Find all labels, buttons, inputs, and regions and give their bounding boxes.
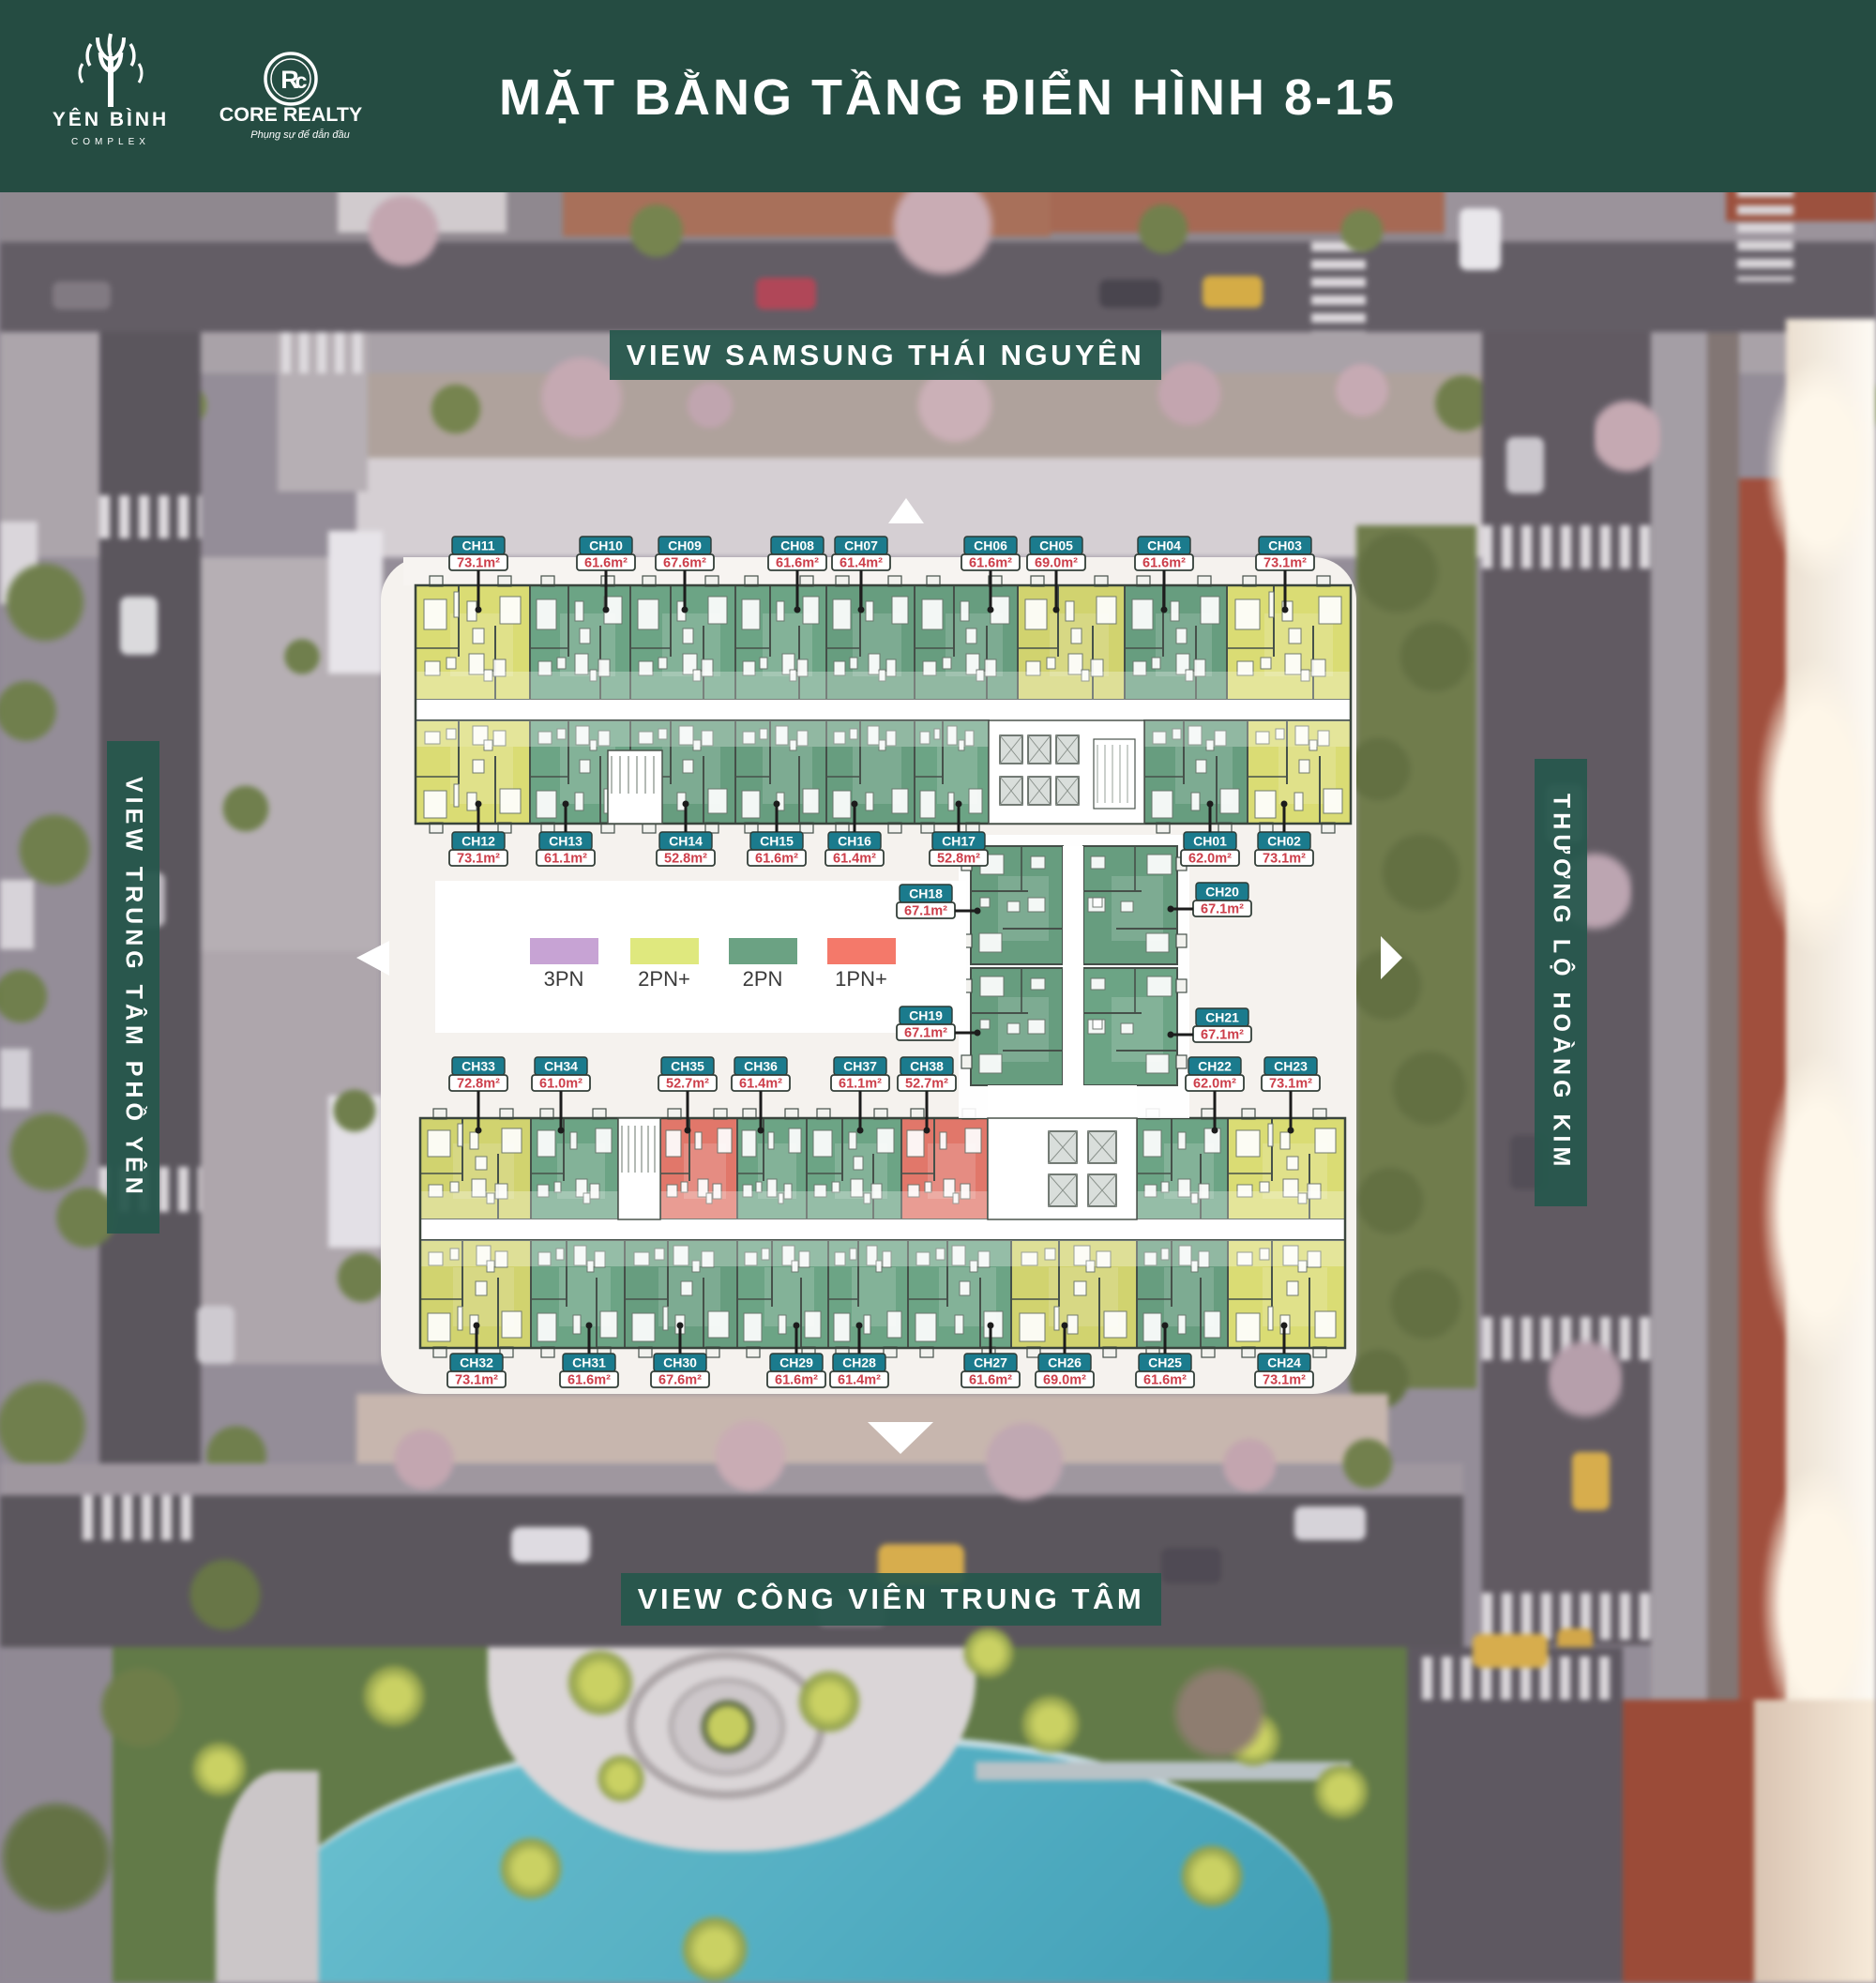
svg-text:CH21: CH21 [1205, 1010, 1239, 1025]
svg-text:73.1m²: 73.1m² [1263, 852, 1306, 867]
svg-text:CH03: CH03 [1268, 538, 1302, 553]
svg-text:67.6m²: 67.6m² [663, 556, 706, 571]
svg-text:67.1m²: 67.1m² [1201, 902, 1244, 917]
svg-text:61.4m²: 61.4m² [838, 1373, 881, 1388]
svg-text:CH34: CH34 [544, 1059, 578, 1074]
svg-text:69.0m²: 69.0m² [1043, 1373, 1086, 1388]
svg-text:61.6m²: 61.6m² [567, 1373, 611, 1388]
svg-text:CH33: CH33 [461, 1059, 495, 1074]
svg-text:73.1m²: 73.1m² [1263, 556, 1307, 571]
svg-text:61.6m²: 61.6m² [969, 556, 1012, 571]
svg-text:CH25: CH25 [1148, 1355, 1182, 1370]
svg-text:CH05: CH05 [1039, 538, 1073, 553]
svg-text:62.0m²: 62.0m² [1193, 1077, 1236, 1092]
svg-text:CH35: CH35 [671, 1059, 704, 1074]
svg-text:CH20: CH20 [1205, 885, 1239, 900]
svg-text:CH26: CH26 [1048, 1355, 1082, 1370]
svg-text:73.1m²: 73.1m² [1263, 1373, 1306, 1388]
svg-text:67.1m²: 67.1m² [1201, 1028, 1244, 1043]
svg-text:67.1m²: 67.1m² [904, 1026, 947, 1041]
svg-text:1PN+: 1PN+ [835, 967, 887, 991]
svg-text:CH07: CH07 [844, 538, 878, 553]
svg-text:CH23: CH23 [1274, 1059, 1308, 1074]
svg-text:CH16: CH16 [838, 834, 871, 849]
svg-text:61.6m²: 61.6m² [755, 852, 798, 867]
svg-text:61.6m²: 61.6m² [1143, 1373, 1187, 1388]
svg-text:52.8m²: 52.8m² [937, 852, 980, 867]
svg-text:62.0m²: 62.0m² [1188, 852, 1232, 867]
svg-text:69.0m²: 69.0m² [1035, 556, 1078, 571]
svg-text:3PN: 3PN [544, 967, 584, 991]
svg-text:CH02: CH02 [1267, 834, 1301, 849]
svg-text:CH12: CH12 [461, 834, 495, 849]
svg-text:52.7m²: 52.7m² [905, 1077, 948, 1092]
svg-text:72.8m²: 72.8m² [457, 1077, 500, 1092]
svg-text:CH08: CH08 [780, 538, 814, 553]
svg-text:52.7m²: 52.7m² [666, 1077, 709, 1092]
svg-text:CH37: CH37 [843, 1059, 877, 1074]
svg-text:CH29: CH29 [779, 1355, 813, 1370]
svg-text:CH19: CH19 [909, 1008, 943, 1023]
svg-text:CH27: CH27 [974, 1355, 1007, 1370]
svg-text:67.6m²: 67.6m² [658, 1373, 702, 1388]
svg-text:CH11: CH11 [461, 538, 494, 553]
svg-text:CH24: CH24 [1267, 1355, 1301, 1370]
svg-text:CH22: CH22 [1198, 1059, 1232, 1074]
svg-text:52.8m²: 52.8m² [664, 852, 707, 867]
svg-text:2PN+: 2PN+ [638, 967, 690, 991]
svg-text:CH18: CH18 [909, 886, 943, 901]
svg-text:CH32: CH32 [460, 1355, 493, 1370]
svg-text:61.6m²: 61.6m² [775, 1373, 818, 1388]
svg-text:CH28: CH28 [842, 1355, 876, 1370]
svg-text:CH06: CH06 [974, 538, 1007, 553]
svg-text:c: c [295, 68, 308, 93]
svg-text:CH38: CH38 [910, 1059, 944, 1074]
svg-text:73.1m²: 73.1m² [455, 1373, 498, 1388]
svg-text:CH17: CH17 [942, 834, 976, 849]
svg-text:61.6m²: 61.6m² [584, 556, 628, 571]
svg-text:CH14: CH14 [669, 834, 703, 849]
svg-text:67.1m²: 67.1m² [904, 904, 947, 919]
svg-text:CH09: CH09 [668, 538, 702, 553]
svg-text:CH31: CH31 [572, 1355, 606, 1370]
svg-text:73.1m²: 73.1m² [457, 556, 500, 571]
svg-text:CH13: CH13 [549, 834, 582, 849]
svg-text:61.1m²: 61.1m² [839, 1077, 882, 1092]
svg-text:CH30: CH30 [663, 1355, 697, 1370]
svg-text:61.1m²: 61.1m² [544, 852, 587, 867]
svg-text:CH10: CH10 [589, 538, 623, 553]
svg-text:61.6m²: 61.6m² [1142, 556, 1186, 571]
svg-text:61.4m²: 61.4m² [739, 1077, 782, 1092]
svg-text:2PN: 2PN [743, 967, 783, 991]
svg-text:61.4m²: 61.4m² [840, 556, 883, 571]
svg-text:CH15: CH15 [760, 834, 794, 849]
svg-text:CH04: CH04 [1147, 538, 1181, 553]
svg-text:61.4m²: 61.4m² [833, 852, 876, 867]
svg-text:CH36: CH36 [744, 1059, 778, 1074]
svg-text:61.6m²: 61.6m² [969, 1373, 1012, 1388]
svg-text:73.1m²: 73.1m² [457, 852, 500, 867]
svg-text:CH01: CH01 [1193, 834, 1227, 849]
svg-text:73.1m²: 73.1m² [1269, 1077, 1312, 1092]
svg-text:61.6m²: 61.6m² [776, 556, 819, 571]
svg-text:61.0m²: 61.0m² [539, 1077, 582, 1092]
